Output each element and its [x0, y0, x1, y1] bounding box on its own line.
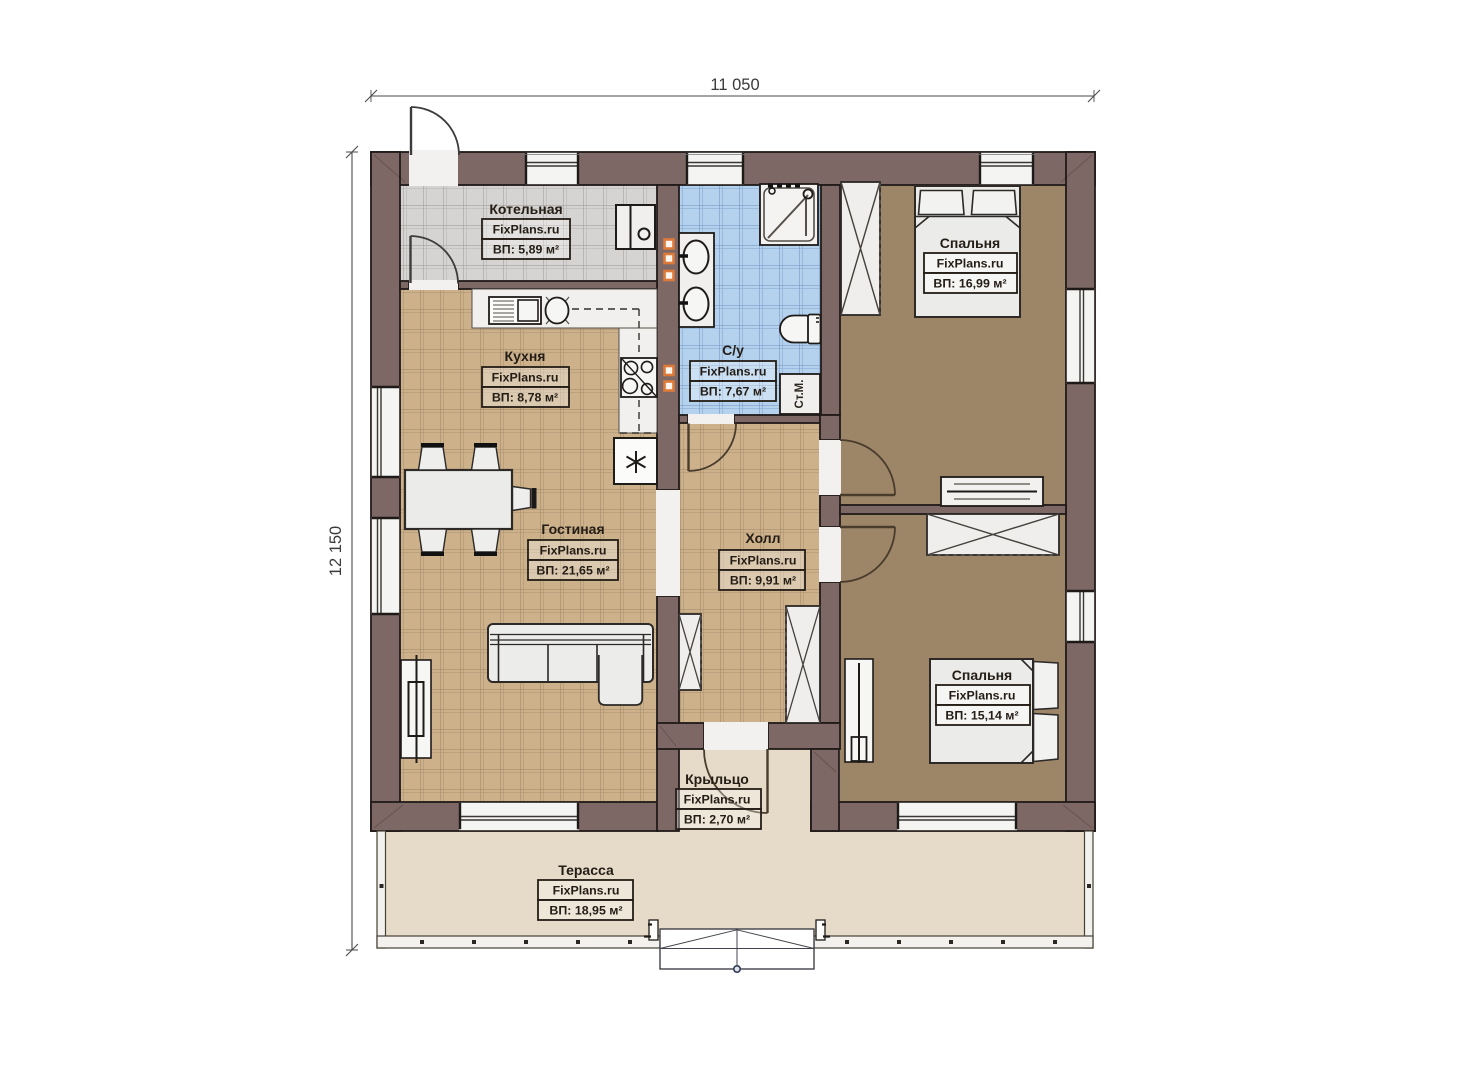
- svg-text:С/у: С/у: [722, 342, 744, 358]
- svg-text:FixPlans.ru: FixPlans.ru: [540, 544, 607, 558]
- svg-text:ВП: 5,89 м²: ВП: 5,89 м²: [493, 243, 559, 257]
- svg-text:11 050: 11 050: [710, 76, 759, 94]
- svg-text:Гостиная: Гостиная: [541, 521, 604, 537]
- svg-text:FixPlans.ru: FixPlans.ru: [684, 793, 751, 807]
- svg-text:ВП: 16,99 м²: ВП: 16,99 м²: [933, 277, 1006, 291]
- svg-text:Спальня: Спальня: [940, 235, 1000, 251]
- svg-text:12 150: 12 150: [327, 526, 345, 576]
- svg-text:ВП: 9,91 м²: ВП: 9,91 м²: [730, 574, 796, 588]
- svg-text:Спальня: Спальня: [952, 667, 1012, 683]
- svg-text:Холл: Холл: [745, 530, 780, 546]
- svg-text:FixPlans.ru: FixPlans.ru: [492, 371, 559, 385]
- svg-text:FixPlans.ru: FixPlans.ru: [493, 223, 560, 237]
- svg-text:Кухня: Кухня: [505, 348, 546, 364]
- svg-text:Крыльцо: Крыльцо: [685, 771, 749, 787]
- svg-text:FixPlans.ru: FixPlans.ru: [937, 257, 1004, 271]
- svg-text:ВП: 15,14 м²: ВП: 15,14 м²: [945, 709, 1018, 723]
- svg-text:FixPlans.ru: FixPlans.ru: [730, 554, 797, 568]
- svg-text:ВП: 21,65 м²: ВП: 21,65 м²: [536, 564, 609, 578]
- svg-text:FixPlans.ru: FixPlans.ru: [949, 689, 1016, 703]
- svg-text:FixPlans.ru: FixPlans.ru: [553, 884, 620, 898]
- svg-text:ВП: 2,70 м²: ВП: 2,70 м²: [684, 813, 750, 827]
- svg-text:ВП: 7,67 м²: ВП: 7,67 м²: [700, 385, 766, 399]
- svg-text:Котельная: Котельная: [489, 201, 562, 217]
- svg-text:Терасса: Терасса: [558, 862, 614, 878]
- svg-text:FixPlans.ru: FixPlans.ru: [700, 365, 767, 379]
- svg-text:ВП: 18,95 м²: ВП: 18,95 м²: [549, 904, 622, 918]
- svg-text:Ст.М.: Ст.М.: [794, 380, 806, 409]
- svg-text:ВП: 8,78 м²: ВП: 8,78 м²: [492, 391, 558, 405]
